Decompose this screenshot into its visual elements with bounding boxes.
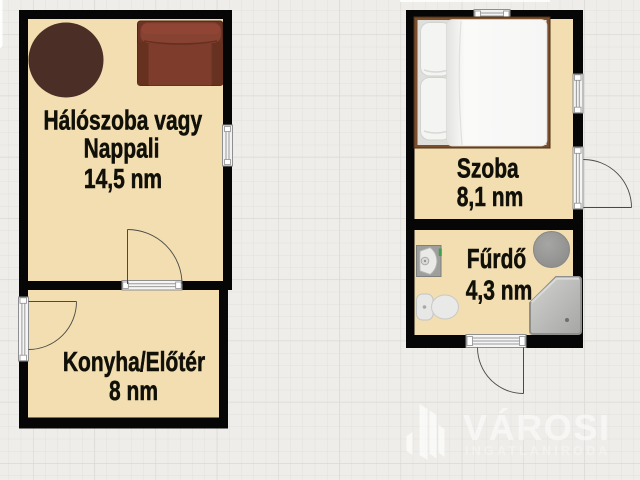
- svg-text:Konyha/Előtér: Konyha/Előtér: [63, 347, 206, 378]
- svg-text:INGATLANIRODA: INGATLANIRODA: [465, 444, 611, 458]
- svg-text:8 nm: 8 nm: [109, 376, 158, 407]
- svg-text:Hálószoba vagy: Hálószoba vagy: [43, 106, 202, 137]
- svg-text:4,3 nm: 4,3 nm: [466, 276, 532, 307]
- svg-text:14,5 nm: 14,5 nm: [84, 164, 162, 195]
- svg-text:Fűrdő: Fűrdő: [467, 244, 526, 275]
- svg-text:VÁROSI: VÁROSI: [463, 407, 611, 448]
- svg-text:Szoba: Szoba: [457, 154, 519, 185]
- svg-text:8,1 nm: 8,1 nm: [457, 182, 523, 213]
- svg-text:Nappali: Nappali: [84, 134, 160, 165]
